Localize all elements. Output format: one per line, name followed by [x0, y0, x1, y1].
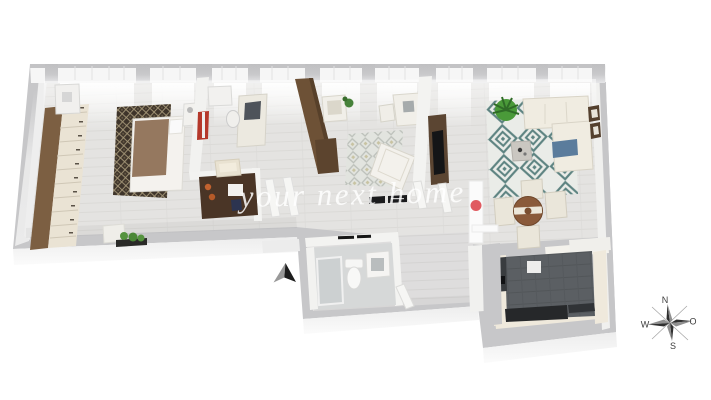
svg-text:W: W: [641, 320, 650, 330]
svg-text:your next home: your next home: [236, 174, 466, 214]
svg-text:N: N: [662, 295, 669, 305]
svg-text:O: O: [689, 317, 696, 327]
svg-text:S: S: [670, 341, 676, 351]
